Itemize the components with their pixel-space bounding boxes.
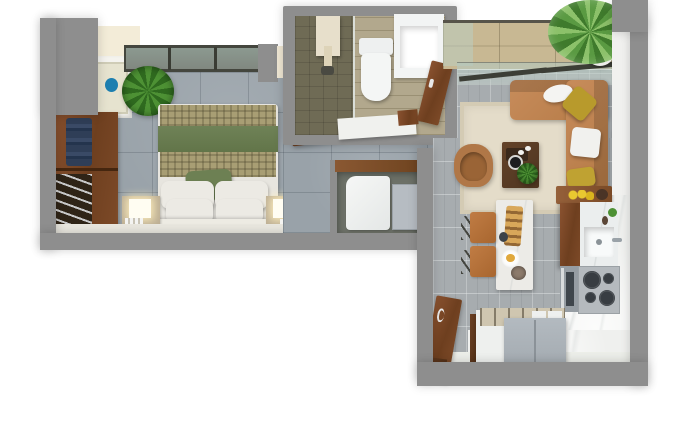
wall-kitchen-left (417, 148, 433, 380)
washing-machine (346, 176, 390, 230)
wall-stub-window-right (258, 44, 278, 82)
vanity-wood-block (397, 109, 418, 126)
toilet (358, 38, 394, 104)
lemons (568, 190, 594, 200)
oven-handle (561, 268, 564, 310)
burner (603, 273, 614, 284)
cup (525, 146, 531, 151)
bed-blanket-green (158, 126, 278, 152)
wall-right (630, 16, 648, 386)
shower-fixture (316, 16, 340, 56)
burner (599, 290, 615, 306)
armchair-seat (460, 152, 487, 181)
wardrobe-clothes-stack (66, 118, 92, 166)
kitchen-sink (584, 227, 614, 257)
window-mullion (168, 47, 171, 70)
oven (560, 266, 578, 312)
table-lamp (129, 199, 151, 218)
bed-blanket-plaid-top (160, 105, 276, 126)
inner-wall-white-right (612, 20, 630, 195)
kitchen-counter-marble (580, 202, 618, 266)
cooktop (578, 266, 620, 314)
counter-decor-plant (608, 208, 617, 217)
burner (583, 271, 601, 289)
nightstand-left (122, 196, 160, 225)
burner (585, 292, 596, 303)
wardrobe (50, 112, 118, 233)
niche-wood-trim (335, 160, 423, 172)
fruit-bowl (596, 189, 608, 200)
room-kitchen (410, 180, 650, 390)
faucet (612, 238, 622, 242)
cup (518, 150, 524, 155)
wardrobe-divider (50, 168, 118, 171)
sink-drain (596, 239, 602, 245)
wall-left (40, 18, 56, 250)
wall-kitchen-bottom (417, 362, 648, 386)
wall-bedroom-bottom (40, 233, 432, 250)
sofa-pillow-white (570, 127, 602, 159)
wardrobe-hanger-rail (56, 174, 92, 230)
kitchen-cabinet-face (560, 203, 580, 267)
door-handle (436, 308, 445, 323)
window-mullion (214, 47, 217, 70)
floorplan-canvas (0, 0, 700, 425)
oven-window (566, 272, 574, 306)
toilet-bowl (361, 53, 391, 101)
wall-top-right-block (612, 0, 648, 32)
picture-art-blue (105, 78, 118, 92)
shower-head (321, 66, 334, 75)
counter-decor-bottle (602, 216, 608, 225)
